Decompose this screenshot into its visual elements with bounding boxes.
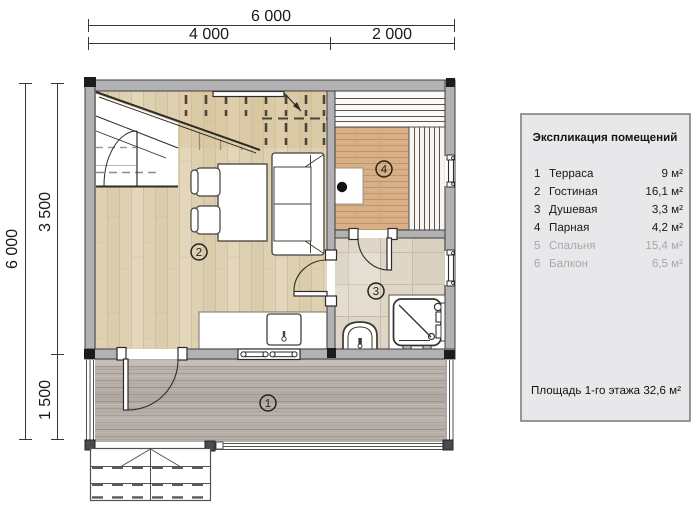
svg-text:Балкон: Балкон [549, 257, 588, 270]
svg-text:Душевая: Душевая [549, 203, 597, 216]
svg-text:Экспликация помещений: Экспликация помещений [533, 131, 678, 144]
svg-text:4 000: 4 000 [189, 26, 229, 43]
svg-text:3: 3 [373, 286, 379, 298]
svg-text:6: 6 [534, 257, 540, 270]
svg-text:3,3 м²: 3,3 м² [652, 203, 683, 216]
svg-text:5: 5 [534, 239, 540, 252]
svg-text:2 000: 2 000 [372, 26, 412, 43]
svg-text:Терраса: Терраса [549, 167, 594, 180]
svg-text:Парная: Парная [549, 221, 589, 234]
svg-text:Спальня: Спальня [549, 239, 596, 252]
svg-text:Гостиная: Гостиная [549, 185, 598, 198]
svg-text:9 м²: 9 м² [661, 167, 683, 180]
svg-text:6,5 м²: 6,5 м² [652, 257, 683, 270]
svg-text:6 000: 6 000 [251, 8, 291, 25]
svg-text:4: 4 [381, 164, 388, 176]
svg-text:1: 1 [265, 398, 271, 410]
svg-text:2: 2 [196, 247, 202, 259]
svg-text:6 000: 6 000 [4, 229, 21, 269]
svg-text:Площадь 1-го этажа 32,6 м²: Площадь 1-го этажа 32,6 м² [531, 384, 681, 397]
svg-text:1: 1 [534, 167, 540, 180]
svg-text:2: 2 [534, 185, 540, 198]
svg-text:4: 4 [534, 221, 541, 234]
svg-text:1 500: 1 500 [37, 380, 54, 420]
svg-text:4,2 м²: 4,2 м² [652, 221, 683, 234]
svg-text:15,4 м²: 15,4 м² [645, 239, 683, 252]
svg-text:16,1 м²: 16,1 м² [645, 185, 683, 198]
svg-text:3: 3 [534, 203, 540, 216]
svg-text:3 500: 3 500 [37, 192, 54, 232]
